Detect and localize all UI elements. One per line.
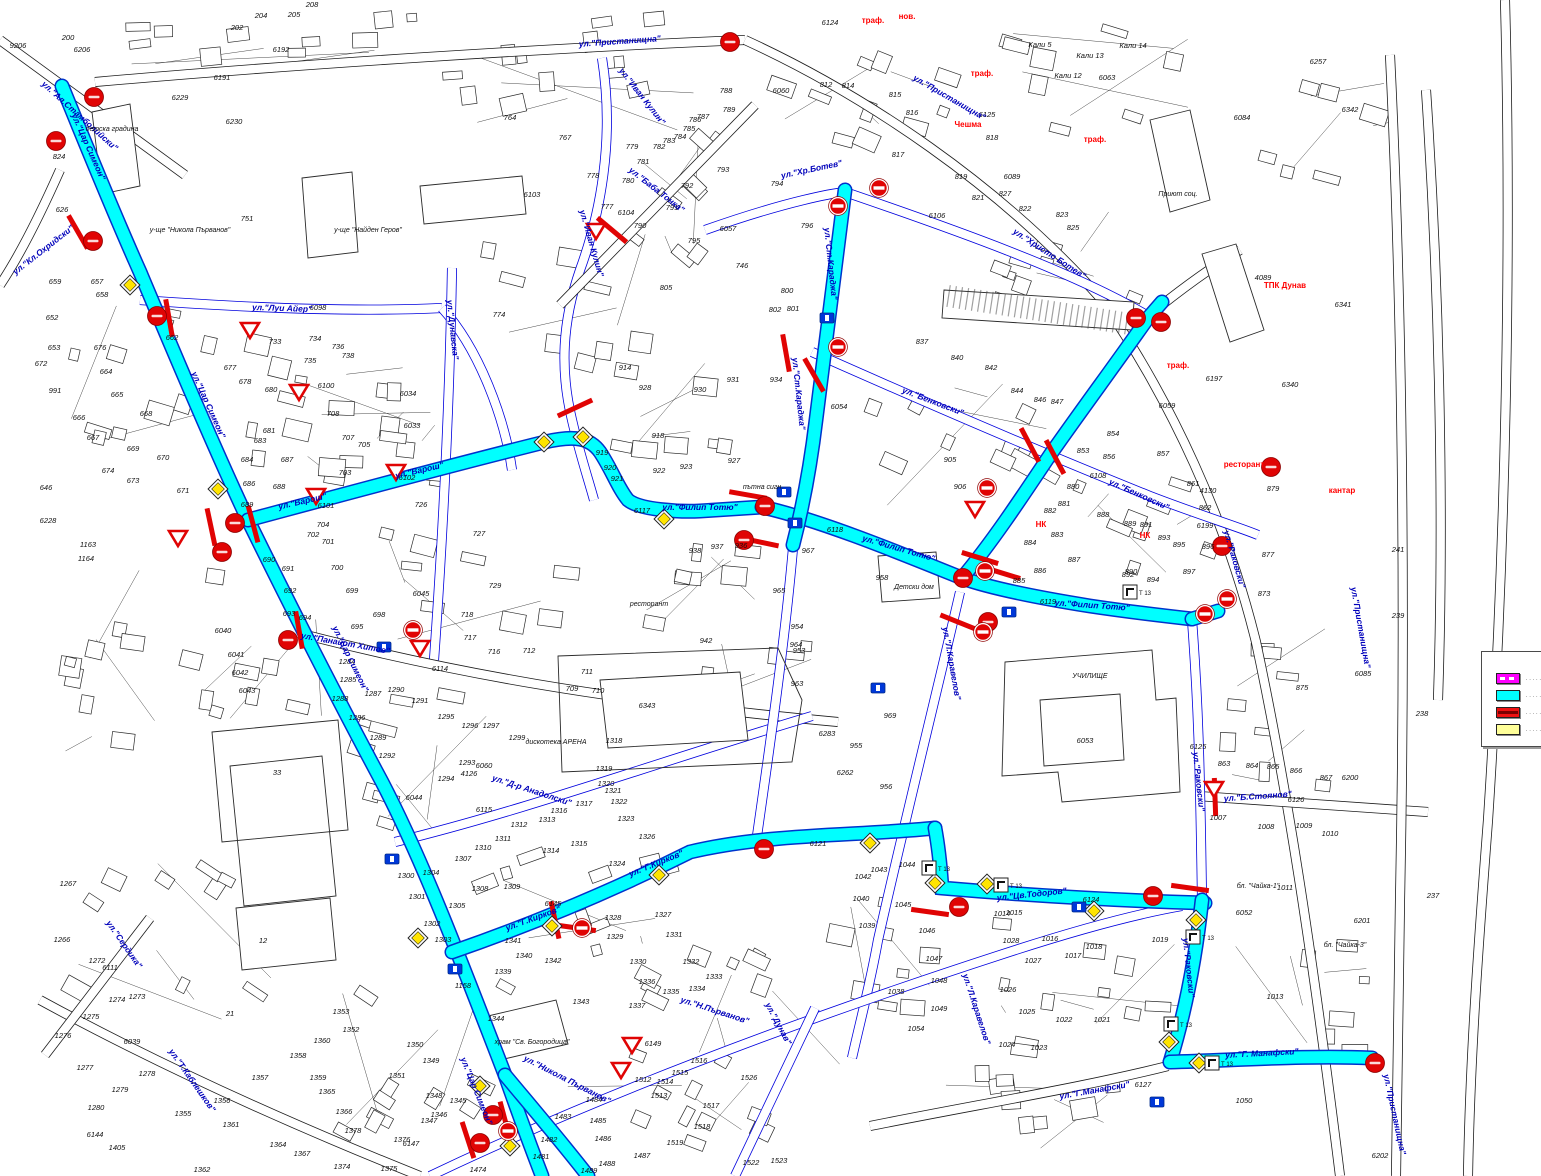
poi-label: Детски дом bbox=[893, 583, 934, 591]
parcel-number: Кали 12 bbox=[1054, 71, 1082, 80]
parcel-boundary-line bbox=[640, 388, 697, 417]
landmark-building bbox=[236, 898, 336, 970]
legend-item: ........... bbox=[1496, 704, 1541, 721]
parcel-number: 716 bbox=[488, 647, 501, 656]
building bbox=[832, 132, 854, 148]
parcel-number: 1319 bbox=[596, 764, 614, 773]
parcel-number: 1336 bbox=[639, 977, 657, 986]
parcel-number: 687 bbox=[281, 455, 294, 464]
parcel-number: 694 bbox=[299, 613, 312, 622]
building bbox=[1299, 80, 1319, 97]
parcel-number: 237 bbox=[1426, 891, 1440, 900]
red-annotation-label: Чешма bbox=[955, 120, 983, 129]
parcel-number: 1301 bbox=[409, 892, 426, 901]
parcel-number: 1044 bbox=[899, 860, 916, 869]
stop-sign-text bbox=[759, 848, 770, 850]
parcel-number: 1375 bbox=[381, 1164, 399, 1173]
parcel-number: 824 bbox=[53, 152, 66, 161]
crossing-bar bbox=[205, 508, 218, 546]
parcel-number: 712 bbox=[523, 646, 536, 655]
parcel-number: 942 bbox=[700, 636, 713, 645]
no-entry-sign-bar bbox=[577, 926, 588, 929]
parcel-number: 6343 bbox=[639, 701, 657, 710]
building bbox=[721, 566, 748, 587]
parcel-number: 919 bbox=[596, 448, 609, 457]
parcel-number: 905 bbox=[944, 455, 957, 464]
t13-sign-label: Т 13 bbox=[1180, 1023, 1193, 1029]
parcel-boundary-line bbox=[641, 936, 643, 943]
parcel-number: 895 bbox=[1173, 540, 1186, 549]
parcel-number: 1289 bbox=[370, 733, 388, 742]
parcel-number: 6084 bbox=[1234, 113, 1251, 122]
parcel-number: 801 bbox=[787, 304, 800, 313]
legend-swatch-route-cyan bbox=[1496, 690, 1520, 701]
parcel-number: 865 bbox=[1267, 762, 1280, 771]
building bbox=[1016, 403, 1036, 424]
parcel-number: 709 bbox=[566, 684, 579, 693]
building bbox=[975, 1065, 989, 1081]
building bbox=[871, 51, 892, 74]
building bbox=[352, 32, 378, 48]
parcel-number: 764 bbox=[504, 113, 517, 122]
parcel-number: 677 bbox=[224, 363, 237, 372]
parcel-number: 1286 bbox=[349, 713, 367, 722]
building bbox=[941, 434, 956, 451]
building bbox=[1101, 24, 1128, 39]
building bbox=[539, 72, 555, 92]
parcel-number: 1328 bbox=[605, 913, 623, 922]
parcel-number: 819 bbox=[955, 172, 968, 181]
parcel-number: 827 bbox=[999, 189, 1012, 198]
parcel-number: 667 bbox=[87, 433, 100, 442]
building bbox=[631, 1110, 652, 1129]
parcel-number: 738 bbox=[342, 351, 355, 360]
parcel-number: 1296 bbox=[462, 721, 480, 730]
parcel-number: 1021 bbox=[1094, 1015, 1111, 1024]
building bbox=[517, 847, 546, 866]
parcel-number: 1523 bbox=[771, 1156, 789, 1165]
parcel-number: 818 bbox=[986, 133, 999, 142]
poi-label: дискотека АРЕНА bbox=[525, 738, 586, 746]
parcel-number: 238 bbox=[1415, 709, 1429, 718]
parcel-number: 6118 bbox=[827, 525, 844, 534]
landmark-building bbox=[1202, 244, 1264, 342]
map-viewport[interactable]: Т 13Т 13Т 13Т 13Т 13Т 132002022042052086… bbox=[0, 0, 1541, 1176]
parcel-number: 1008 bbox=[1258, 822, 1276, 831]
building bbox=[243, 981, 268, 1002]
parcel-number: 1311 bbox=[495, 834, 511, 843]
parcel-number: 1335 bbox=[663, 987, 681, 996]
parcel-number: 1348 bbox=[426, 1091, 444, 1100]
parcel-number: 6104 bbox=[618, 208, 635, 217]
building bbox=[574, 353, 596, 373]
parcel-number: 927 bbox=[728, 456, 741, 465]
info-sign-glyph bbox=[1155, 1099, 1159, 1105]
map-canvas[interactable]: Т 13Т 13Т 13Т 13Т 13Т 132002022042052086… bbox=[0, 0, 1541, 1176]
building bbox=[594, 341, 613, 360]
parcel-number: 751 bbox=[241, 214, 254, 223]
parcel-number: 1487 bbox=[634, 1151, 652, 1160]
t13-sign-icon bbox=[1123, 585, 1137, 599]
building bbox=[205, 568, 224, 585]
parcel-number: 6199 bbox=[1197, 521, 1215, 530]
parcel-number: 6108 bbox=[1090, 471, 1108, 480]
building bbox=[120, 633, 145, 651]
building bbox=[286, 699, 310, 715]
building bbox=[1002, 37, 1030, 55]
building bbox=[437, 688, 465, 704]
parcel-number: 6197 bbox=[1206, 374, 1224, 383]
parcel-number: 12 bbox=[259, 936, 268, 945]
parcel-number: 695 bbox=[351, 622, 364, 631]
building bbox=[83, 893, 104, 912]
parcel-number: 662 bbox=[166, 333, 179, 342]
parcel-number: 823 bbox=[1056, 210, 1069, 219]
parcel-number: 6341 bbox=[1335, 300, 1352, 309]
poi-label: у-ще "Найден Геров" bbox=[333, 226, 402, 234]
parcel-number: 796 bbox=[801, 221, 814, 230]
building bbox=[1262, 646, 1282, 659]
parcel-number: 1047 bbox=[926, 954, 944, 963]
parcel-number: 652 bbox=[46, 313, 59, 322]
building bbox=[879, 451, 907, 474]
parcel-number: 1272 bbox=[89, 956, 107, 965]
red-annotation-label: НК bbox=[1140, 531, 1151, 540]
road-surface bbox=[1468, 0, 1508, 1176]
parcel-number: 683 bbox=[254, 436, 267, 445]
legend-label-dots: ........... bbox=[1526, 693, 1541, 699]
no-entry-sign-bar bbox=[1200, 612, 1211, 615]
parcel-number: 931 bbox=[727, 375, 740, 384]
parcel-number: 842 bbox=[985, 363, 998, 372]
parcel-number: 883 bbox=[1051, 530, 1064, 539]
red-annotation-label: нов. bbox=[899, 12, 916, 21]
parcel-number: 666 bbox=[73, 413, 86, 422]
parcel-number: 204 bbox=[254, 11, 268, 20]
t13-sign-icon bbox=[994, 878, 1008, 892]
parcel-number: 208 bbox=[305, 0, 319, 9]
building bbox=[716, 438, 732, 455]
parcel-number: 688 bbox=[273, 482, 286, 491]
building bbox=[878, 1000, 898, 1011]
parcel-number: 1517 bbox=[703, 1101, 721, 1110]
parcel-number: 200 bbox=[61, 33, 75, 42]
building bbox=[628, 331, 653, 354]
parcel-number: 691 bbox=[282, 564, 295, 573]
building bbox=[553, 565, 580, 580]
parcel-number: 1359 bbox=[310, 1073, 328, 1082]
parcel-number: 1350 bbox=[407, 1040, 425, 1049]
legend-label-dots: ........... bbox=[1526, 710, 1541, 716]
parcel-number: 1519 bbox=[667, 1138, 685, 1147]
road-surface bbox=[40, 1000, 420, 1176]
parcel-number: 1358 bbox=[290, 1051, 308, 1060]
parcel-number: 664 bbox=[100, 367, 113, 376]
building bbox=[460, 86, 477, 105]
yield-sign-icon bbox=[169, 531, 187, 546]
parcel-number: 6043 bbox=[239, 686, 257, 695]
parcel-boundary-line bbox=[1081, 212, 1109, 251]
parcel-number: 1324 bbox=[609, 859, 626, 868]
building bbox=[1329, 1011, 1354, 1027]
parcel-number: 733 bbox=[269, 337, 282, 346]
building bbox=[1359, 103, 1389, 127]
parcel-number: 1483 bbox=[555, 1112, 573, 1121]
parcel-number: 815 bbox=[889, 90, 902, 99]
parcel-number: 777 bbox=[601, 202, 614, 211]
parcel-boundary-line bbox=[66, 737, 92, 751]
parcel-number: 681 bbox=[263, 426, 276, 435]
parcel-number: 1273 bbox=[129, 992, 147, 1001]
building bbox=[1318, 83, 1340, 102]
parcel-number: 6060 bbox=[476, 761, 494, 770]
building bbox=[374, 11, 393, 29]
parcel-number: 863 bbox=[1218, 759, 1231, 768]
parcel-number: 1023 bbox=[1031, 1043, 1049, 1052]
parcel-number: 774 bbox=[493, 310, 506, 319]
parcel-number: 6206 bbox=[74, 45, 92, 54]
building bbox=[209, 705, 224, 719]
parcel-number: 1515 bbox=[672, 1068, 690, 1077]
building bbox=[1313, 170, 1341, 185]
parcel-number: 862 bbox=[1199, 503, 1212, 512]
parcel-number: 969 bbox=[884, 711, 897, 720]
parcel-number: 936 bbox=[735, 541, 748, 550]
parcel-number: 1050 bbox=[1236, 1096, 1254, 1105]
parcel-number: 930 bbox=[694, 385, 707, 394]
parcel-number: 789 bbox=[723, 105, 736, 114]
parcel-number: 1011 bbox=[1277, 883, 1293, 892]
parcel-number: 727 bbox=[473, 529, 486, 538]
parcel-number: 1351 bbox=[389, 1071, 406, 1080]
parcel-number: 1027 bbox=[1025, 956, 1043, 965]
parcel-number: 6257 bbox=[1310, 57, 1328, 66]
parcel-number: 1295 bbox=[438, 712, 456, 721]
t13-sign-label: Т 13 bbox=[938, 867, 951, 873]
parcel-number: 689 bbox=[241, 500, 254, 509]
poi-label: УЧИЛИЩЕ bbox=[1071, 673, 1107, 680]
building bbox=[85, 640, 105, 660]
info-sign-glyph bbox=[793, 520, 797, 526]
parcel-number: 6115 bbox=[476, 805, 493, 814]
parcel-number: 1299 bbox=[509, 733, 527, 742]
parcel-number: 920 bbox=[604, 463, 617, 472]
parcel-number: 1513 bbox=[651, 1091, 669, 1100]
building bbox=[808, 89, 831, 105]
parcel-number: Кали 5 bbox=[1028, 40, 1052, 49]
stop-sign-text bbox=[1370, 1062, 1381, 1064]
parcel-number: 704 bbox=[317, 520, 330, 529]
building bbox=[407, 13, 417, 22]
t13-sign-label: Т 13 bbox=[1221, 1062, 1234, 1068]
building bbox=[1122, 109, 1143, 124]
parcel-number: 670 bbox=[157, 453, 170, 462]
parcel-number: 817 bbox=[892, 150, 905, 159]
parcel-number: 1274 bbox=[109, 995, 126, 1004]
parcel-boundary-line bbox=[1001, 1006, 1006, 1013]
street-label: ул."Т.Каблешков" bbox=[166, 1046, 218, 1115]
parcel-number: 710 bbox=[592, 686, 605, 695]
parcel-number: 879 bbox=[1267, 484, 1280, 493]
parcel-number: 787 bbox=[697, 112, 710, 121]
parcel-number: 6085 bbox=[1355, 669, 1373, 678]
landmark-building bbox=[420, 176, 526, 224]
road-surface bbox=[705, 192, 1148, 316]
parcel-number: 726 bbox=[415, 500, 428, 509]
parcel-number: 1164 bbox=[78, 554, 94, 563]
legend: .. .....................................… bbox=[1481, 651, 1541, 747]
building bbox=[1220, 732, 1236, 751]
parcel-number: 1038 bbox=[888, 987, 906, 996]
building bbox=[126, 22, 151, 31]
parcel-number: 1022 bbox=[1056, 1015, 1074, 1024]
parcel-number: 847 bbox=[1051, 397, 1064, 406]
parcel-number: 1318 bbox=[606, 736, 624, 745]
parcel-number: 9206 bbox=[10, 41, 28, 50]
parcel-number: 6041 bbox=[228, 650, 245, 659]
parcel-number: 6121 bbox=[810, 839, 827, 848]
red-annotation-label: траф. bbox=[1084, 135, 1106, 144]
parcel-number: 1516 bbox=[691, 1056, 709, 1065]
street-label: ул."Филип Тотю" bbox=[661, 502, 738, 512]
info-sign-glyph bbox=[1077, 904, 1081, 910]
parcel-number: 1307 bbox=[455, 854, 473, 863]
building bbox=[79, 695, 94, 714]
parcel-number: 906 bbox=[954, 482, 967, 491]
building bbox=[154, 25, 172, 37]
parcel-number: 668 bbox=[140, 409, 153, 418]
info-sign-glyph bbox=[825, 315, 829, 321]
parcel-number: 1267 bbox=[60, 879, 78, 888]
building bbox=[1030, 47, 1056, 71]
parcel-number: 241 bbox=[1391, 545, 1405, 554]
parcel-number: 673 bbox=[127, 476, 140, 485]
info-sign-glyph bbox=[453, 966, 457, 972]
parcel-number: 1334 bbox=[689, 984, 706, 993]
parcel-number: 1310 bbox=[475, 843, 493, 852]
parcel-boundary-line bbox=[663, 559, 723, 620]
parcel-number: 923 bbox=[680, 462, 693, 471]
building bbox=[852, 127, 881, 153]
legend-item: ........... bbox=[1496, 721, 1541, 738]
parcel-number: 1346 bbox=[431, 1110, 449, 1119]
parcel-number: 6044 bbox=[406, 793, 423, 802]
stop-sign-text bbox=[217, 551, 228, 553]
parcel-number: 6089 bbox=[1004, 172, 1022, 181]
stop-sign-text bbox=[152, 315, 163, 317]
building bbox=[106, 345, 127, 364]
parcel-number: 676 bbox=[94, 343, 107, 352]
parcel-boundary-line bbox=[79, 964, 222, 1019]
poi-label: храм "Св. Богородица" bbox=[494, 1038, 570, 1046]
legend-item: ........... bbox=[1496, 687, 1541, 704]
building bbox=[727, 957, 740, 970]
no-entry-sign-bar bbox=[978, 630, 989, 633]
building bbox=[101, 868, 127, 892]
parcel-number: 866 bbox=[1290, 766, 1303, 775]
parcel-number: 1349 bbox=[423, 1056, 441, 1065]
parcel-number: 6200 bbox=[1342, 773, 1360, 782]
parcel-number: 1043 bbox=[871, 865, 889, 874]
crossing-bar bbox=[780, 334, 792, 372]
parcel-number: 6228 bbox=[40, 516, 58, 525]
parcel-number: 6059 bbox=[1159, 401, 1177, 410]
parcel-number: 4126 bbox=[461, 769, 479, 778]
parcel-number: 1303 bbox=[435, 935, 453, 944]
parcel-number: 1345 bbox=[450, 1096, 468, 1105]
parcel-number: 6053 bbox=[1077, 736, 1095, 745]
building bbox=[1049, 122, 1071, 136]
road-surface bbox=[1426, 90, 1441, 700]
parcel-number: 1009 bbox=[1296, 821, 1314, 830]
parcel-number: 1017 bbox=[1065, 951, 1083, 960]
info-sign-glyph bbox=[876, 685, 880, 691]
building bbox=[443, 71, 463, 80]
parcel-number: 1308 bbox=[472, 884, 490, 893]
parcel-number: 1300 bbox=[398, 871, 416, 880]
no-entry-sign-bar bbox=[982, 486, 993, 489]
building bbox=[179, 650, 203, 671]
parcel-number: 6124 bbox=[1083, 895, 1100, 904]
building bbox=[295, 375, 307, 384]
parcel-number: 6057 bbox=[720, 224, 738, 233]
parcel-number: 793 bbox=[717, 165, 730, 174]
parcel-number: 6052 bbox=[1236, 908, 1254, 917]
parcel-number: 894 bbox=[1147, 575, 1160, 584]
no-entry-sign-bar bbox=[980, 569, 991, 572]
building bbox=[1163, 51, 1183, 71]
red-annotation-label: ТПК Дунав bbox=[1264, 281, 1306, 290]
parcel-number: 6340 bbox=[1282, 380, 1300, 389]
building bbox=[1028, 74, 1048, 96]
parcel-number: 967 bbox=[802, 546, 815, 555]
parcel-number: 1291 bbox=[412, 696, 429, 705]
parcel-number: 837 bbox=[916, 337, 929, 346]
parcel-number: 6040 bbox=[215, 626, 233, 635]
building bbox=[390, 694, 415, 707]
street-label: ул."Ст.Караджа" bbox=[790, 356, 808, 431]
parcel-number: 1302 bbox=[424, 919, 442, 928]
parcel-number: 1486 bbox=[595, 1134, 613, 1143]
parcel-number: 844 bbox=[1011, 386, 1024, 395]
red-annotation-label: траф. bbox=[862, 16, 884, 25]
parcel-number: 822 bbox=[1019, 204, 1032, 213]
building bbox=[857, 56, 874, 71]
parcel-boundary-line bbox=[96, 640, 155, 721]
building bbox=[591, 944, 603, 957]
road-surface bbox=[870, 1066, 1168, 1126]
parcel-number: 891 bbox=[1140, 520, 1153, 529]
parcel-number: 1028 bbox=[1003, 936, 1021, 945]
info-sign-glyph bbox=[390, 856, 394, 862]
building bbox=[643, 11, 665, 27]
parcel-number: 922 bbox=[653, 466, 666, 475]
no-entry-sign-bar bbox=[408, 628, 419, 631]
parcel-number: 1276 bbox=[55, 1031, 73, 1040]
parcel-number: 1405 bbox=[109, 1143, 127, 1152]
parcel-number: 735 bbox=[304, 356, 317, 365]
parcel-number: 914 bbox=[619, 363, 632, 372]
street-label: ул."Л.Каравелов" bbox=[960, 971, 993, 1046]
parcel-boundary-line bbox=[851, 907, 867, 994]
parcel-number: 1512 bbox=[635, 1075, 653, 1084]
parcel-number: 626 bbox=[56, 205, 69, 214]
parcel-number: 1474 bbox=[470, 1165, 487, 1174]
red-annotation-label: кантар bbox=[1329, 486, 1356, 495]
parcel-number: 888 bbox=[1097, 510, 1110, 519]
parcel-number: 840 bbox=[951, 353, 964, 362]
stop-sign-text bbox=[1148, 895, 1159, 897]
